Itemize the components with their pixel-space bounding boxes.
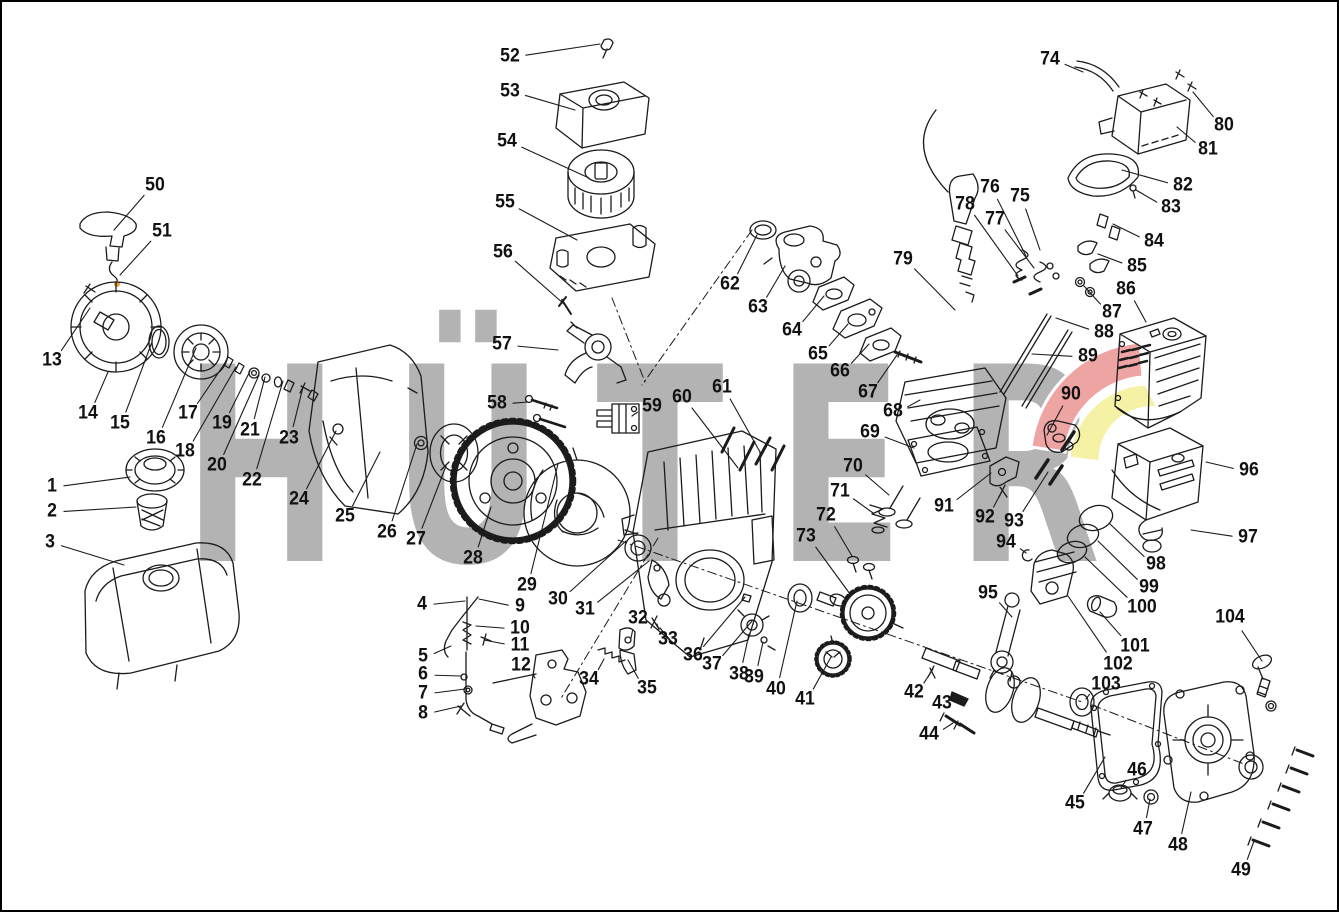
leader-line-83 xyxy=(1136,190,1157,202)
fuel-tap xyxy=(565,322,626,383)
leader-line-92 xyxy=(994,491,1002,507)
leader-line-60 xyxy=(692,408,738,468)
leader-line-40 xyxy=(780,601,797,678)
leader-line-9 xyxy=(479,599,508,605)
leader-line-97 xyxy=(1191,530,1232,536)
leader-line-59 xyxy=(632,412,637,416)
leader-line-15 xyxy=(126,342,152,412)
leader-line-72 xyxy=(835,527,852,556)
leader-line-51 xyxy=(120,241,151,275)
leader-line-69 xyxy=(885,437,914,448)
leader-line-54 xyxy=(522,147,589,178)
leader-line-13 xyxy=(61,308,90,351)
leader-line-26 xyxy=(392,444,417,521)
leader-line-55 xyxy=(519,209,577,240)
leader-line-20 xyxy=(224,375,259,454)
carburetor-and-gaskets xyxy=(750,221,921,363)
leader-line-62 xyxy=(738,235,757,274)
fuel-cap-filter-tank xyxy=(85,449,239,689)
leader-line-14 xyxy=(95,372,108,402)
leader-line-5 xyxy=(434,646,451,653)
leader-line-48 xyxy=(1182,792,1191,834)
leader-line-3 xyxy=(62,546,124,565)
leader-line-99 xyxy=(1098,541,1137,579)
leader-line-44 xyxy=(943,723,953,729)
leader-line-11 xyxy=(484,640,504,644)
leader-line-67 xyxy=(878,355,897,383)
leader-line-17 xyxy=(197,360,227,404)
fan-cover xyxy=(309,345,428,514)
leader-line-76 xyxy=(997,199,1026,256)
leader-line-27 xyxy=(422,466,446,528)
leader-line-96 xyxy=(1206,462,1233,468)
leader-line-70 xyxy=(866,475,889,495)
leader-line-38 xyxy=(743,634,749,663)
leader-line-65 xyxy=(829,324,848,346)
leader-line-25 xyxy=(353,452,380,506)
leader-line-86 xyxy=(1134,301,1146,322)
leader-line-78 xyxy=(975,215,1018,276)
fan-shroud xyxy=(524,448,669,599)
crankcase-cover-side xyxy=(1070,652,1313,846)
leader-line-32 xyxy=(631,631,632,638)
crankshaft-piston-rod xyxy=(922,501,1117,737)
leader-line-63 xyxy=(767,266,785,297)
leader-line-71 xyxy=(853,499,873,513)
leader-line-53 xyxy=(525,95,575,110)
leader-line-73 xyxy=(816,547,850,594)
camshaft-and-governor-gear xyxy=(788,584,903,676)
leader-line-56 xyxy=(515,261,564,304)
starter-cup-and-flywheel xyxy=(430,421,573,541)
leader-line-42 xyxy=(924,669,933,683)
leader-line-10 xyxy=(476,626,504,628)
leader-line-16 xyxy=(162,348,196,427)
leader-line-1 xyxy=(64,477,130,486)
leader-line-36 xyxy=(704,597,745,646)
leader-line-39 xyxy=(758,642,763,666)
leader-line-52 xyxy=(526,44,600,55)
muffler-assembly xyxy=(1044,318,1206,552)
leader-line-66 xyxy=(852,344,869,363)
leader-line-2 xyxy=(64,507,136,511)
spark-plug-and-lead xyxy=(924,110,979,302)
leader-line-31 xyxy=(598,561,649,602)
leader-line-58 xyxy=(513,402,528,403)
air-filter-assembly xyxy=(550,39,655,314)
leader-line-80 xyxy=(1193,92,1213,117)
leader-line-84 xyxy=(1113,224,1139,237)
leader-lines xyxy=(61,44,1262,859)
leader-line-50 xyxy=(114,195,144,230)
valve-train xyxy=(848,314,1073,579)
leader-line-7 xyxy=(435,689,465,693)
leader-line-6 xyxy=(435,675,461,676)
leader-line-57 xyxy=(518,346,558,350)
leader-line-35 xyxy=(628,660,638,678)
leader-line-104 xyxy=(1242,631,1262,661)
exploded-view-art xyxy=(0,0,1339,912)
leader-line-101 xyxy=(1100,612,1121,636)
leader-line-23 xyxy=(293,387,303,427)
engine-block xyxy=(622,428,784,657)
valve-cover-rockers xyxy=(1014,61,1196,297)
leader-line-75 xyxy=(1026,209,1040,250)
leader-line-91 xyxy=(957,473,991,499)
leader-line-4 xyxy=(434,601,465,604)
governor-linkage xyxy=(444,597,659,743)
leader-line-79 xyxy=(915,269,955,310)
leader-line-88 xyxy=(1056,318,1089,329)
leader-line-34 xyxy=(598,659,604,670)
leader-line-61 xyxy=(730,399,760,452)
leader-line-77 xyxy=(1005,230,1034,268)
diagram-canvas: HÜTER xyxy=(0,0,1339,912)
leader-line-47 xyxy=(1147,799,1150,818)
leader-line-19 xyxy=(229,371,250,413)
leader-line-8 xyxy=(435,706,461,712)
